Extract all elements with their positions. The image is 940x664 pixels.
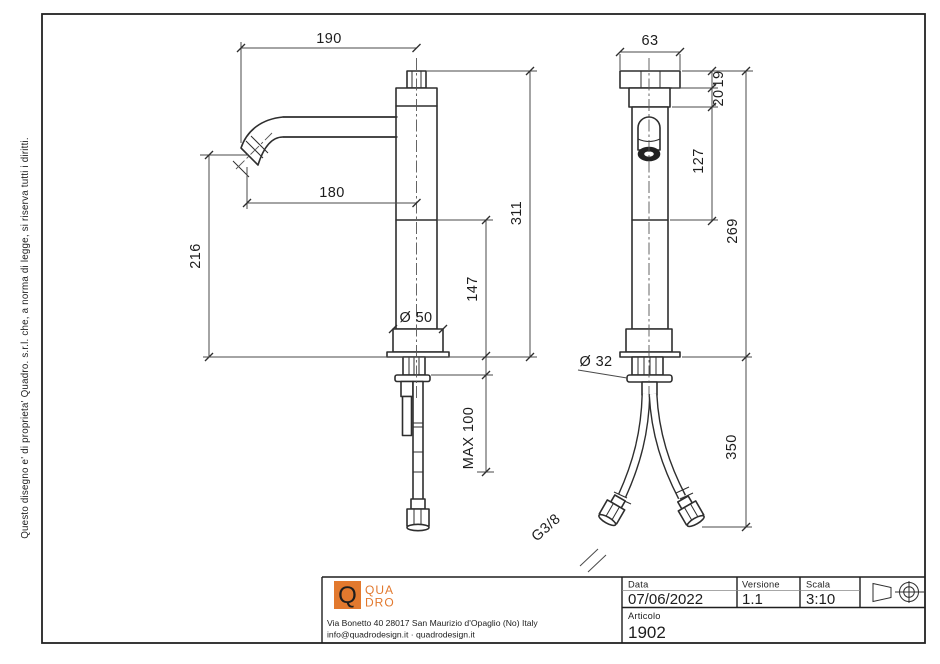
dim-190: 190 [316, 31, 341, 47]
dim-diameter-50: Ø 50 [399, 310, 432, 326]
dim-216: 216 [188, 243, 204, 268]
projection-symbol-icon [873, 581, 924, 603]
field-label-versione: Versione [742, 580, 780, 590]
dim-20: 20 [711, 90, 727, 107]
dim-127: 127 [691, 148, 707, 173]
mounting-stud [401, 382, 413, 397]
quadro-logo-q: Q [338, 582, 357, 609]
dim-thread-g38: G3/8 [529, 511, 564, 545]
hose-nut-end [407, 524, 429, 530]
title-block: Q QUA DRO Via Bonetto 40 28017 San Mauri… [322, 577, 925, 643]
hose-nut-left [597, 493, 629, 528]
quadro-logo-text-bottom: DRO [365, 596, 395, 610]
field-value-scala: 3:10 [806, 591, 835, 608]
front-dimensions: 190 180 216 311 147 MAX 100 Ø 50 [188, 31, 537, 476]
technical-drawing-page: Questo disegno e' di proprieta' Quadro. … [0, 0, 940, 664]
hose-connector [642, 382, 657, 395]
dim-max-100: MAX 100 [461, 407, 477, 469]
dim-180: 180 [319, 185, 344, 201]
threaded-shank-side [632, 357, 663, 375]
dim-147: 147 [465, 276, 481, 301]
field-label-articolo: Articolo [628, 611, 661, 621]
field-label-scala: Scala [806, 580, 831, 590]
hose-nut-right [674, 494, 706, 529]
mounting-rod [403, 397, 412, 436]
mounting-washer [395, 375, 430, 382]
copyright-vertical-text: Questo disegno e' di proprieta' Quadro. … [20, 137, 31, 539]
cap-ring [629, 88, 670, 107]
company-contacts: info@quadrodesign.it · quadrodesign.it [327, 630, 475, 640]
top-disc [620, 71, 680, 88]
company-address: Via Bonetto 40 28017 San Maurizio d'Opag… [327, 618, 538, 628]
drawing-canvas: Questo disegno e' di proprieta' Quadro. … [0, 0, 940, 664]
dim-350: 350 [724, 434, 740, 459]
field-value-articolo: 1902 [628, 623, 666, 642]
field-value-data: 07/06/2022 [628, 591, 703, 608]
dim-269: 269 [725, 218, 741, 243]
dim-311: 311 [509, 201, 525, 225]
flex-hose-front [413, 382, 423, 500]
dim-19: 19 [711, 71, 727, 88]
mounting-washer-side [627, 375, 672, 382]
dim-63: 63 [642, 33, 659, 49]
field-label-data: Data [628, 580, 649, 590]
flex-hose-left-inner [622, 394, 646, 496]
hose-nut-hex [407, 509, 429, 526]
drawing-frame [42, 14, 925, 643]
field-value-versione: 1.1 [742, 591, 763, 608]
dim-diameter-32: Ø 32 [579, 354, 612, 370]
base-cylinder [393, 329, 443, 352]
hose-nut-neck [411, 499, 425, 509]
front-view [233, 58, 449, 531]
spout-outline [241, 117, 397, 165]
side-view [597, 58, 706, 529]
